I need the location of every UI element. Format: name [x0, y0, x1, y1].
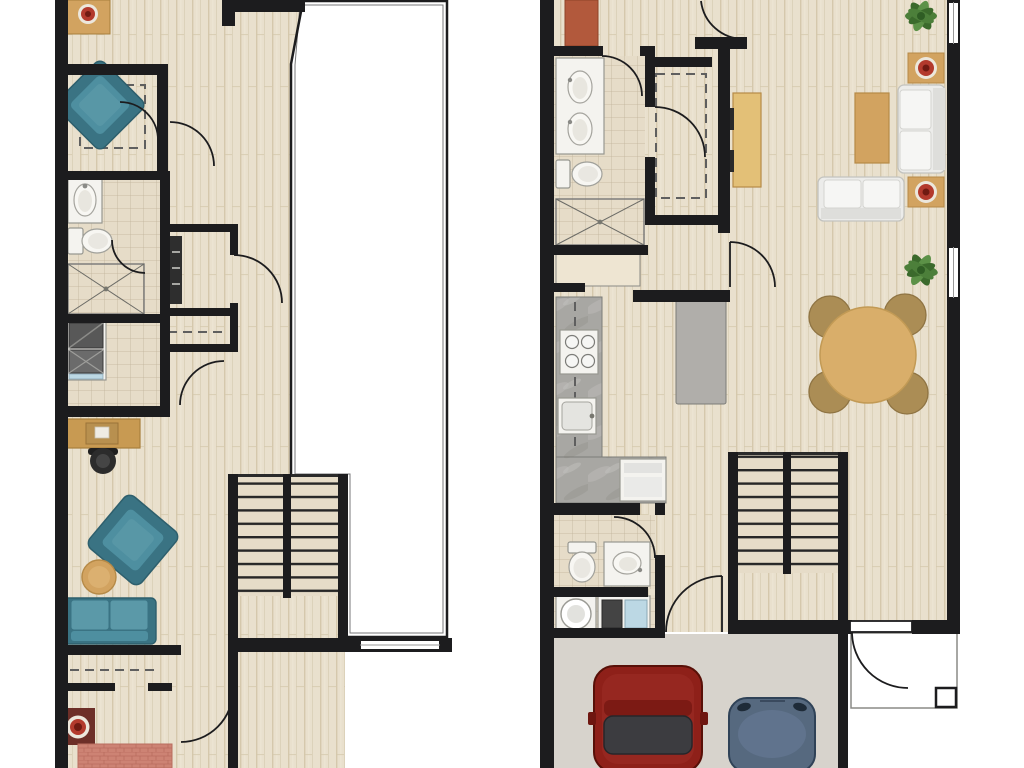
main-wall-closet-bottom [645, 215, 730, 225]
dining-set [809, 294, 928, 414]
main-wall-hall-bottom [633, 290, 730, 302]
main-window-mid [948, 247, 959, 298]
upper-wall-den-bottom [55, 645, 181, 655]
kitchen-dishwasher [620, 459, 666, 501]
floor-plan-image [0, 0, 1024, 768]
garage-car-blue [729, 698, 815, 768]
main-toilet [556, 160, 602, 188]
main-wall-powder-right-b [655, 555, 665, 632]
living-coffee-table [855, 93, 889, 163]
kitchen-island [676, 300, 726, 404]
upper-wall-bedroom-bottom [68, 64, 168, 75]
living-side-table-top [908, 53, 944, 83]
upper-floor-plan [53, 0, 452, 768]
garage-top-wall [553, 628, 665, 638]
upper-nightstand [66, 0, 110, 34]
bedroom2-bed [78, 744, 172, 768]
main-wall-closet-left-a [645, 46, 655, 107]
main-wall-bottom-left [728, 620, 852, 634]
main-wall-living-divider [718, 43, 730, 233]
upper-vanity [68, 176, 102, 223]
powder-vanity [604, 542, 650, 586]
main-wall-closet-left-b [645, 157, 655, 222]
main-wall-kitchen-bottom [553, 503, 640, 515]
upper-sofa [62, 598, 156, 644]
main-shower [556, 199, 644, 245]
laundry-washer [556, 596, 596, 632]
main-wall-right-exterior [947, 0, 960, 634]
living-sofa-right [898, 85, 945, 173]
bedroom2-wardrobe-wall-right [148, 683, 172, 691]
upper-wall-bath-top [68, 171, 168, 180]
upper-wall-top [235, 0, 305, 12]
main-wall-closet-top [648, 57, 712, 67]
main-wall-bath-bottom [553, 245, 648, 255]
main-window-top [948, 2, 959, 44]
main-double-vanity [556, 58, 604, 154]
upper-wall-bath-bottom [68, 314, 170, 323]
upper-wall-closet-divider [157, 64, 168, 180]
main-dresser [730, 93, 761, 187]
main-wall-left-exterior [540, 0, 554, 768]
upper-wall-hall-divider [160, 171, 170, 417]
main-bed-corner [565, 0, 598, 46]
main-wall-bottom-right [912, 620, 960, 634]
powder-toilet [568, 542, 596, 582]
upper-toilet [68, 228, 112, 254]
laundry-dryer [598, 596, 650, 632]
main-wall-powder-right-a [655, 503, 665, 515]
floor-plan-page [0, 0, 1024, 768]
living-sofa-bottom [818, 177, 904, 221]
main-wall-powder-bottom [553, 587, 648, 597]
kitchen-niche [553, 252, 640, 292]
bedroom2-wardrobe-wall-left [62, 683, 115, 691]
upper-wall-top-stub [222, 0, 235, 26]
main-wall-bath-top-left [553, 46, 603, 56]
main-floor-plan [540, 0, 960, 768]
upper-washer-dryer [66, 320, 106, 380]
garage-car-red [588, 666, 708, 768]
upper-ottoman [82, 560, 116, 594]
garage-right-wall [838, 632, 848, 768]
upper-wall-laundry-bottom [68, 406, 170, 417]
upper-window [360, 640, 440, 650]
living-side-table-bottom [908, 177, 944, 207]
